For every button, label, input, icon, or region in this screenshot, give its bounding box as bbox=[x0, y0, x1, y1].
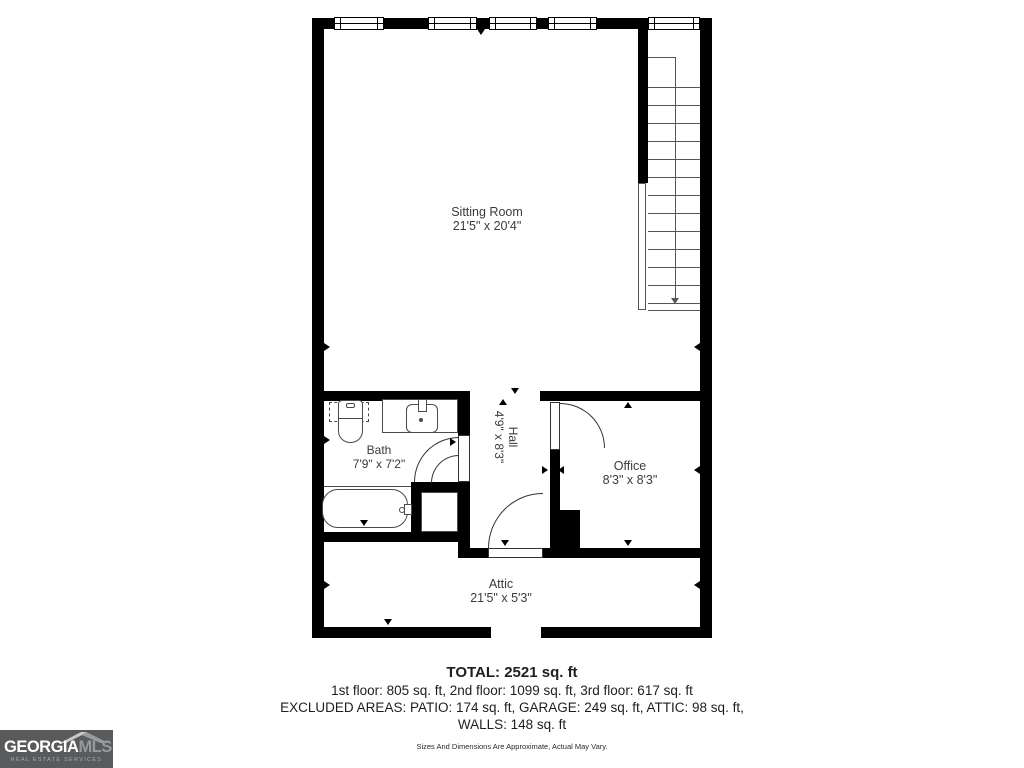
office-door-swing bbox=[560, 403, 605, 448]
hall-office-wall bbox=[550, 450, 560, 510]
room-label-office: Office 8'3" x 8'3" bbox=[580, 459, 680, 487]
room-name: Sitting Room bbox=[407, 205, 567, 219]
georgia-mls-logo: GEORGIAMLS REAL ESTATE SERVICES bbox=[0, 730, 113, 768]
stair-direction-line bbox=[675, 57, 676, 303]
shower-top-wall bbox=[411, 482, 458, 492]
brand-primary-text: GEORGIA bbox=[4, 738, 78, 756]
stair-side-wall bbox=[638, 29, 648, 183]
room-dimensions: 21'5" x 5'3" bbox=[421, 591, 581, 605]
wall-right bbox=[700, 18, 712, 638]
room-name: Bath bbox=[329, 443, 429, 457]
bath-hall-wall-lower bbox=[458, 482, 470, 558]
window bbox=[428, 17, 477, 30]
room-name: Attic bbox=[421, 577, 581, 591]
dimension-tick bbox=[360, 520, 368, 526]
hall-door-leaf bbox=[488, 548, 543, 558]
wall-left bbox=[312, 18, 324, 638]
brand-tagline: REAL ESTATE SERVICES bbox=[0, 757, 113, 763]
window bbox=[648, 17, 700, 30]
hall-bottom-wall-left bbox=[470, 548, 488, 558]
window bbox=[334, 17, 384, 30]
hall-door-swing bbox=[488, 493, 543, 548]
dimension-tick bbox=[624, 402, 632, 408]
dimension-tick bbox=[384, 619, 392, 625]
wall-bottom-left bbox=[312, 627, 491, 638]
toilet-seat-line bbox=[339, 418, 362, 419]
dimension-tick bbox=[558, 466, 564, 474]
room-label-bath: Bath 7'9" x 7'2" bbox=[329, 443, 429, 471]
hall-bottom-wall-right bbox=[543, 548, 550, 558]
stair-railing bbox=[638, 183, 646, 310]
room-label-sitting-room: Sitting Room 21'5" x 20'4" bbox=[407, 205, 567, 233]
dimension-tick bbox=[624, 540, 632, 546]
dimension-tick bbox=[694, 343, 700, 351]
dimension-tick bbox=[324, 343, 330, 351]
dimension-tick bbox=[450, 438, 456, 446]
bath-hall-wall-upper bbox=[458, 391, 470, 435]
dimension-tick bbox=[501, 540, 509, 546]
room-dimensions: 21'5" x 20'4" bbox=[407, 219, 567, 233]
sink-drain-dot bbox=[419, 418, 423, 422]
dimension-tick bbox=[694, 581, 700, 589]
dimension-tick bbox=[542, 466, 548, 474]
window bbox=[489, 17, 537, 30]
room-dimensions: 8'3" x 8'3" bbox=[580, 473, 680, 487]
floorplan-canvas: Sitting Room 21'5" x 20'4" Bath 7'9" x 7… bbox=[0, 0, 1024, 768]
room-name: Hall bbox=[506, 387, 520, 487]
room-label-hall: Hall 4'9" x 8'3" bbox=[492, 387, 520, 487]
bath-door-leaf bbox=[458, 435, 470, 482]
office-corner-block bbox=[550, 510, 580, 548]
tub-faucet-knob bbox=[399, 507, 405, 513]
tub-faucet bbox=[404, 504, 412, 515]
brand-secondary-text: MLS bbox=[78, 738, 111, 756]
toilet-flush-button bbox=[346, 403, 355, 408]
dimension-tick bbox=[384, 534, 392, 540]
room-name: Office bbox=[580, 459, 680, 473]
shower-enclosure bbox=[421, 492, 458, 532]
sink-faucet bbox=[418, 399, 427, 412]
brand-wordmark: GEORGIAMLS bbox=[4, 739, 112, 755]
tub-alcove-line bbox=[324, 486, 411, 487]
office-bottom-wall bbox=[550, 548, 700, 558]
area-summary: TOTAL: 2521 sq. ft 1st floor: 805 sq. ft… bbox=[212, 664, 812, 751]
room-dimensions: 4'9" x 8'3" bbox=[492, 387, 506, 487]
floor-areas-text: 1st floor: 805 sq. ft, 2nd floor: 1099 s… bbox=[212, 682, 812, 699]
stair-landing-line bbox=[648, 57, 675, 58]
dimension-tick bbox=[694, 466, 700, 474]
excluded-areas-text: EXCLUDED AREAS: PATIO: 174 sq. ft, GARAG… bbox=[212, 699, 812, 716]
window bbox=[548, 17, 597, 30]
total-area-text: TOTAL: 2521 sq. ft bbox=[212, 664, 812, 682]
office-door-leaf bbox=[550, 402, 560, 450]
room-label-attic: Attic 21'5" x 5'3" bbox=[421, 577, 581, 605]
stair-down-arrow bbox=[671, 298, 679, 304]
wall-bottom-right bbox=[541, 627, 712, 638]
walls-area-text: WALLS: 148 sq. ft bbox=[212, 716, 812, 733]
dimension-tick bbox=[477, 29, 485, 35]
room-dimensions: 7'9" x 7'2" bbox=[329, 457, 429, 471]
stair-treads bbox=[648, 87, 700, 311]
office-top-wall bbox=[540, 391, 700, 401]
disclaimer-text: Sizes And Dimensions Are Approximate, Ac… bbox=[212, 742, 812, 751]
dimension-tick bbox=[324, 581, 330, 589]
